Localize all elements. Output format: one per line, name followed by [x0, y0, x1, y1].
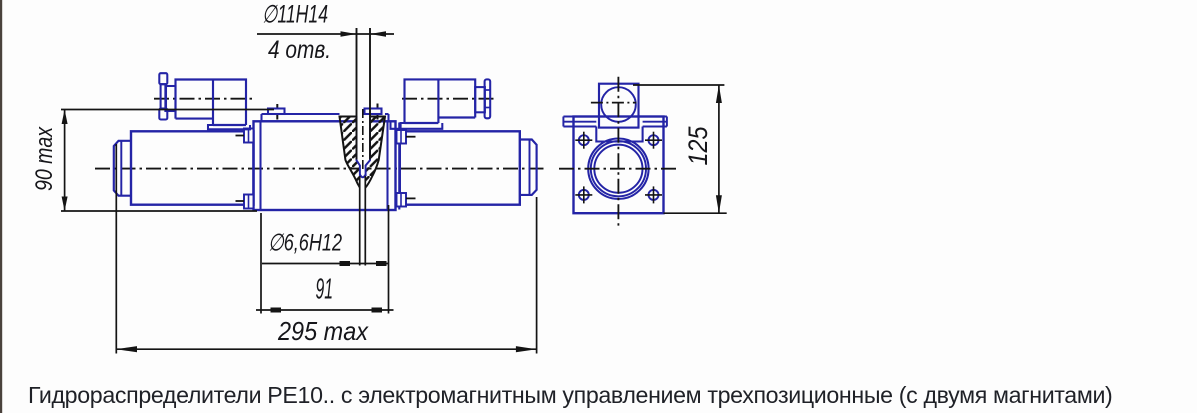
svg-text:∅6,6Н12: ∅6,6Н12	[268, 230, 342, 257]
svg-text:Гидрораспределители РЕ10.. с э: Гидрораспределители РЕ10.. с электромагн…	[28, 382, 1112, 408]
svg-text:125: 125	[683, 126, 713, 165]
svg-text:295 max: 295 max	[277, 316, 369, 346]
svg-text:90 max: 90 max	[31, 126, 58, 191]
svg-text:∅11Н14: ∅11Н14	[262, 1, 328, 29]
svg-text:91: 91	[316, 274, 334, 306]
svg-text:4 отв.: 4 отв.	[268, 36, 331, 64]
